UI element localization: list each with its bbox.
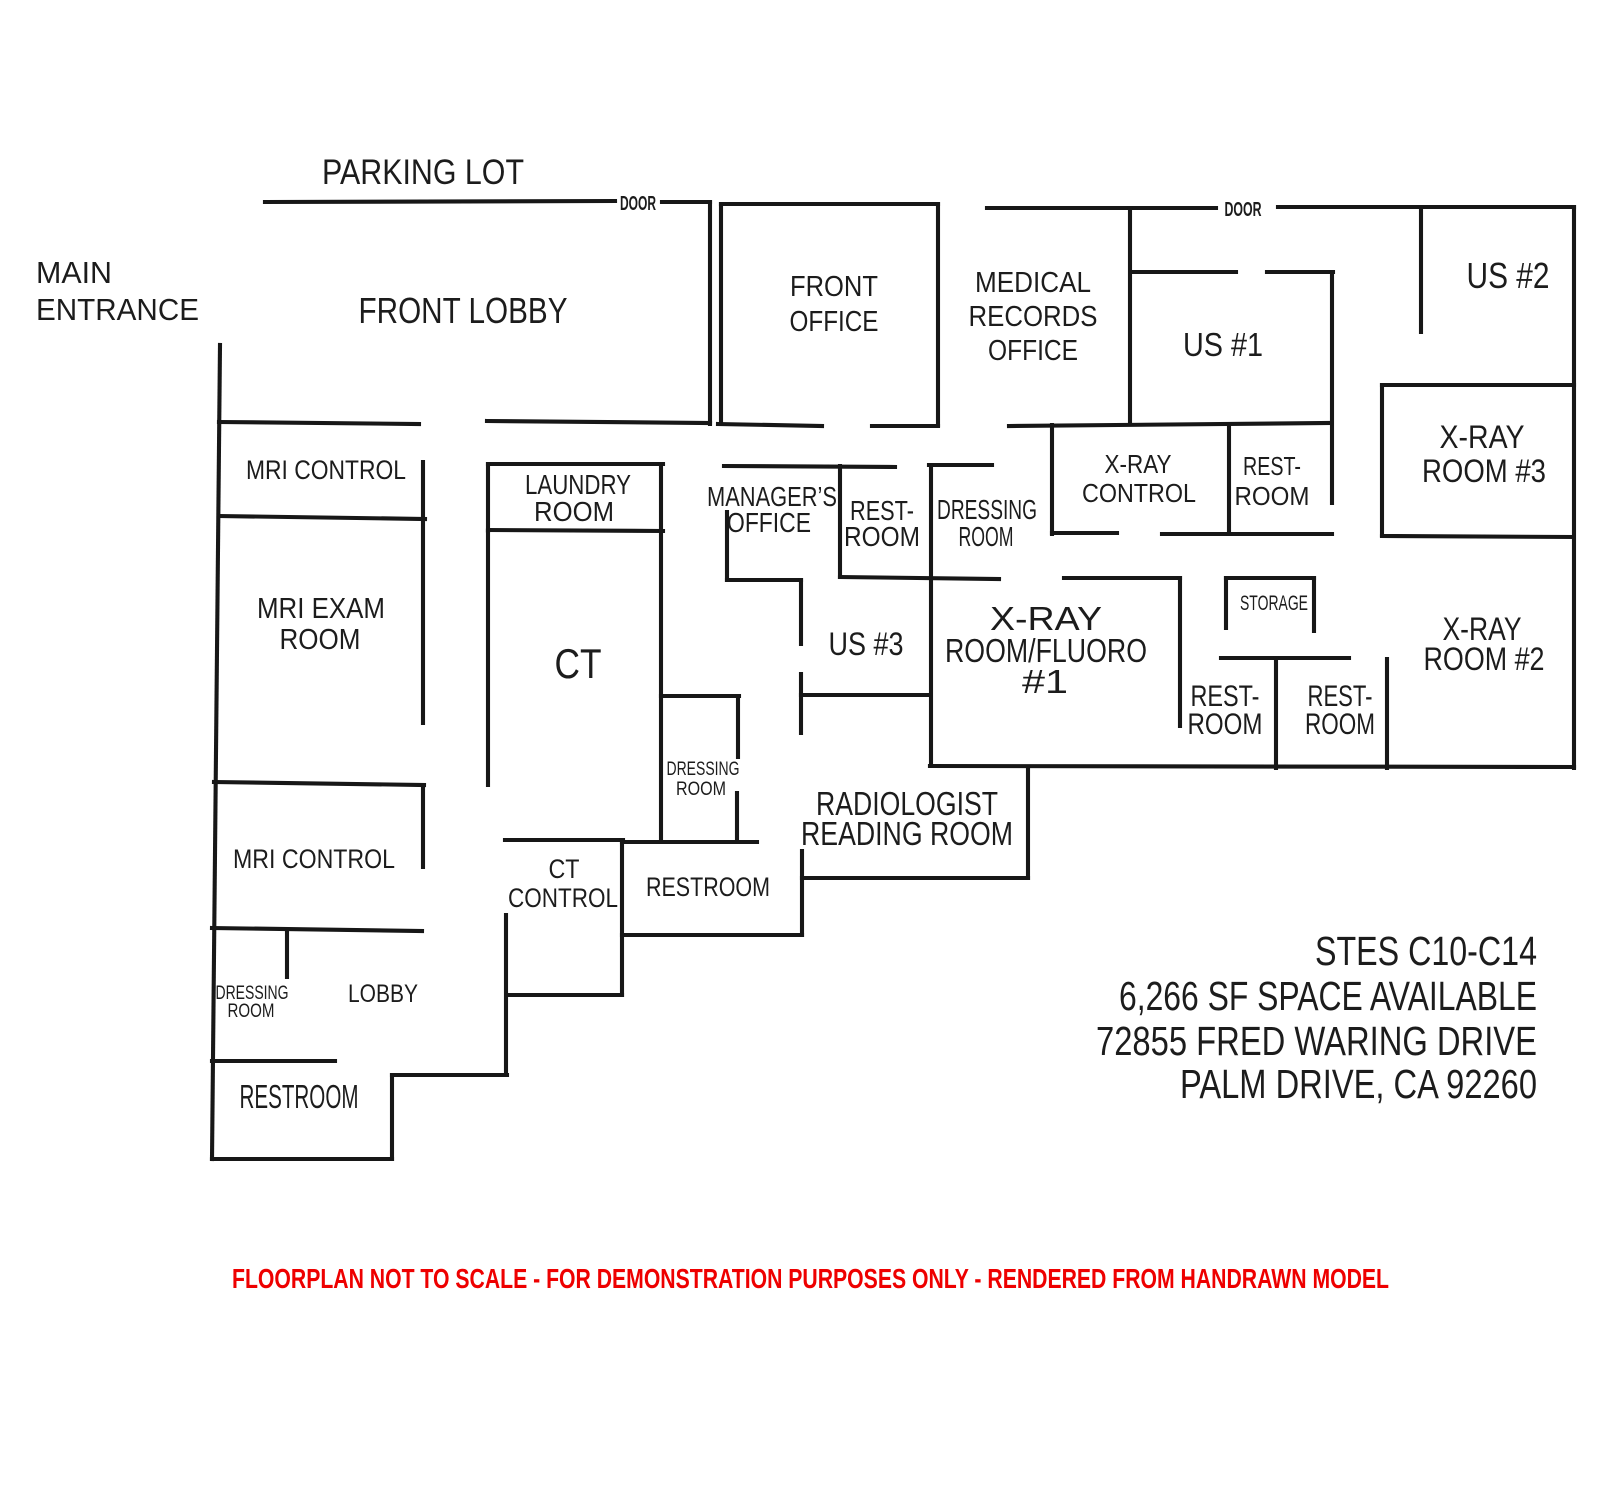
svg-text:READING ROOM: READING ROOM bbox=[801, 815, 1013, 852]
svg-text:US #2: US #2 bbox=[1467, 255, 1550, 296]
svg-text:ROOM: ROOM bbox=[1235, 481, 1310, 511]
svg-text:REST-: REST- bbox=[1243, 451, 1301, 481]
svg-text:FLOORPLAN NOT TO SCALE - FOR D: FLOORPLAN NOT TO SCALE - FOR DEMONSTRATI… bbox=[232, 1263, 1389, 1294]
svg-text:X-RAY: X-RAY bbox=[1440, 419, 1525, 455]
svg-text:FRONT: FRONT bbox=[790, 271, 878, 303]
svg-text:RECORDS: RECORDS bbox=[969, 301, 1098, 333]
svg-text:CONTROL: CONTROL bbox=[508, 883, 618, 913]
svg-text:ROOM #2: ROOM #2 bbox=[1424, 641, 1545, 677]
svg-text:ROOM: ROOM bbox=[676, 779, 726, 800]
svg-text:OFFICE: OFFICE bbox=[988, 335, 1078, 367]
svg-text:FRONT LOBBY: FRONT LOBBY bbox=[359, 290, 568, 331]
svg-text:MRI CONTROL: MRI CONTROL bbox=[233, 844, 395, 874]
svg-text:OFFICE: OFFICE bbox=[790, 306, 879, 338]
svg-text:MRI EXAM: MRI EXAM bbox=[257, 593, 385, 625]
svg-text:ROOM: ROOM bbox=[1188, 708, 1263, 741]
svg-text:MEDICAL: MEDICAL bbox=[975, 267, 1091, 299]
svg-text:PALM DRIVE, CA 92260: PALM DRIVE, CA 92260 bbox=[1180, 1061, 1537, 1107]
svg-text:ROOM: ROOM bbox=[959, 521, 1014, 552]
svg-text:PARKING LOT: PARKING LOT bbox=[322, 153, 524, 192]
svg-text:US #3: US #3 bbox=[829, 626, 904, 662]
svg-text:#1: #1 bbox=[1022, 663, 1068, 700]
svg-text:DOOR: DOOR bbox=[620, 193, 656, 215]
svg-text:OFFICE: OFFICE bbox=[727, 507, 811, 538]
svg-text:ENTRANCE: ENTRANCE bbox=[36, 292, 199, 327]
svg-text:LOBBY: LOBBY bbox=[348, 980, 418, 1008]
svg-text:X-RAY: X-RAY bbox=[1105, 449, 1172, 479]
svg-text:CONTROL: CONTROL bbox=[1082, 478, 1196, 508]
svg-text:DOOR: DOOR bbox=[1225, 199, 1262, 221]
svg-text:ROOM: ROOM bbox=[534, 496, 614, 527]
svg-text:ROOM: ROOM bbox=[1305, 708, 1375, 741]
svg-text:ROOM: ROOM bbox=[228, 1001, 275, 1022]
svg-text:CT: CT bbox=[549, 854, 580, 884]
svg-text:RESTROOM: RESTROOM bbox=[240, 1078, 359, 1115]
svg-text:6,266 SF SPACE AVAILABLE: 6,266 SF SPACE AVAILABLE bbox=[1119, 973, 1537, 1019]
svg-text:ROOM: ROOM bbox=[844, 521, 920, 552]
svg-text:DRESSING: DRESSING bbox=[667, 759, 740, 780]
svg-text:STORAGE: STORAGE bbox=[1240, 592, 1308, 615]
svg-text:US #1: US #1 bbox=[1183, 326, 1263, 363]
svg-text:ROOM: ROOM bbox=[280, 624, 361, 656]
svg-text:CT: CT bbox=[555, 640, 602, 687]
svg-text:RESTROOM: RESTROOM bbox=[646, 872, 770, 902]
svg-text:72855 FRED WARING DRIVE: 72855 FRED WARING DRIVE bbox=[1096, 1018, 1537, 1064]
svg-text:ROOM #3: ROOM #3 bbox=[1422, 453, 1546, 489]
svg-text:MRI CONTROL: MRI CONTROL bbox=[246, 455, 406, 485]
svg-text:STES C10-C14: STES C10-C14 bbox=[1315, 928, 1537, 974]
svg-text:MAIN: MAIN bbox=[36, 255, 112, 290]
